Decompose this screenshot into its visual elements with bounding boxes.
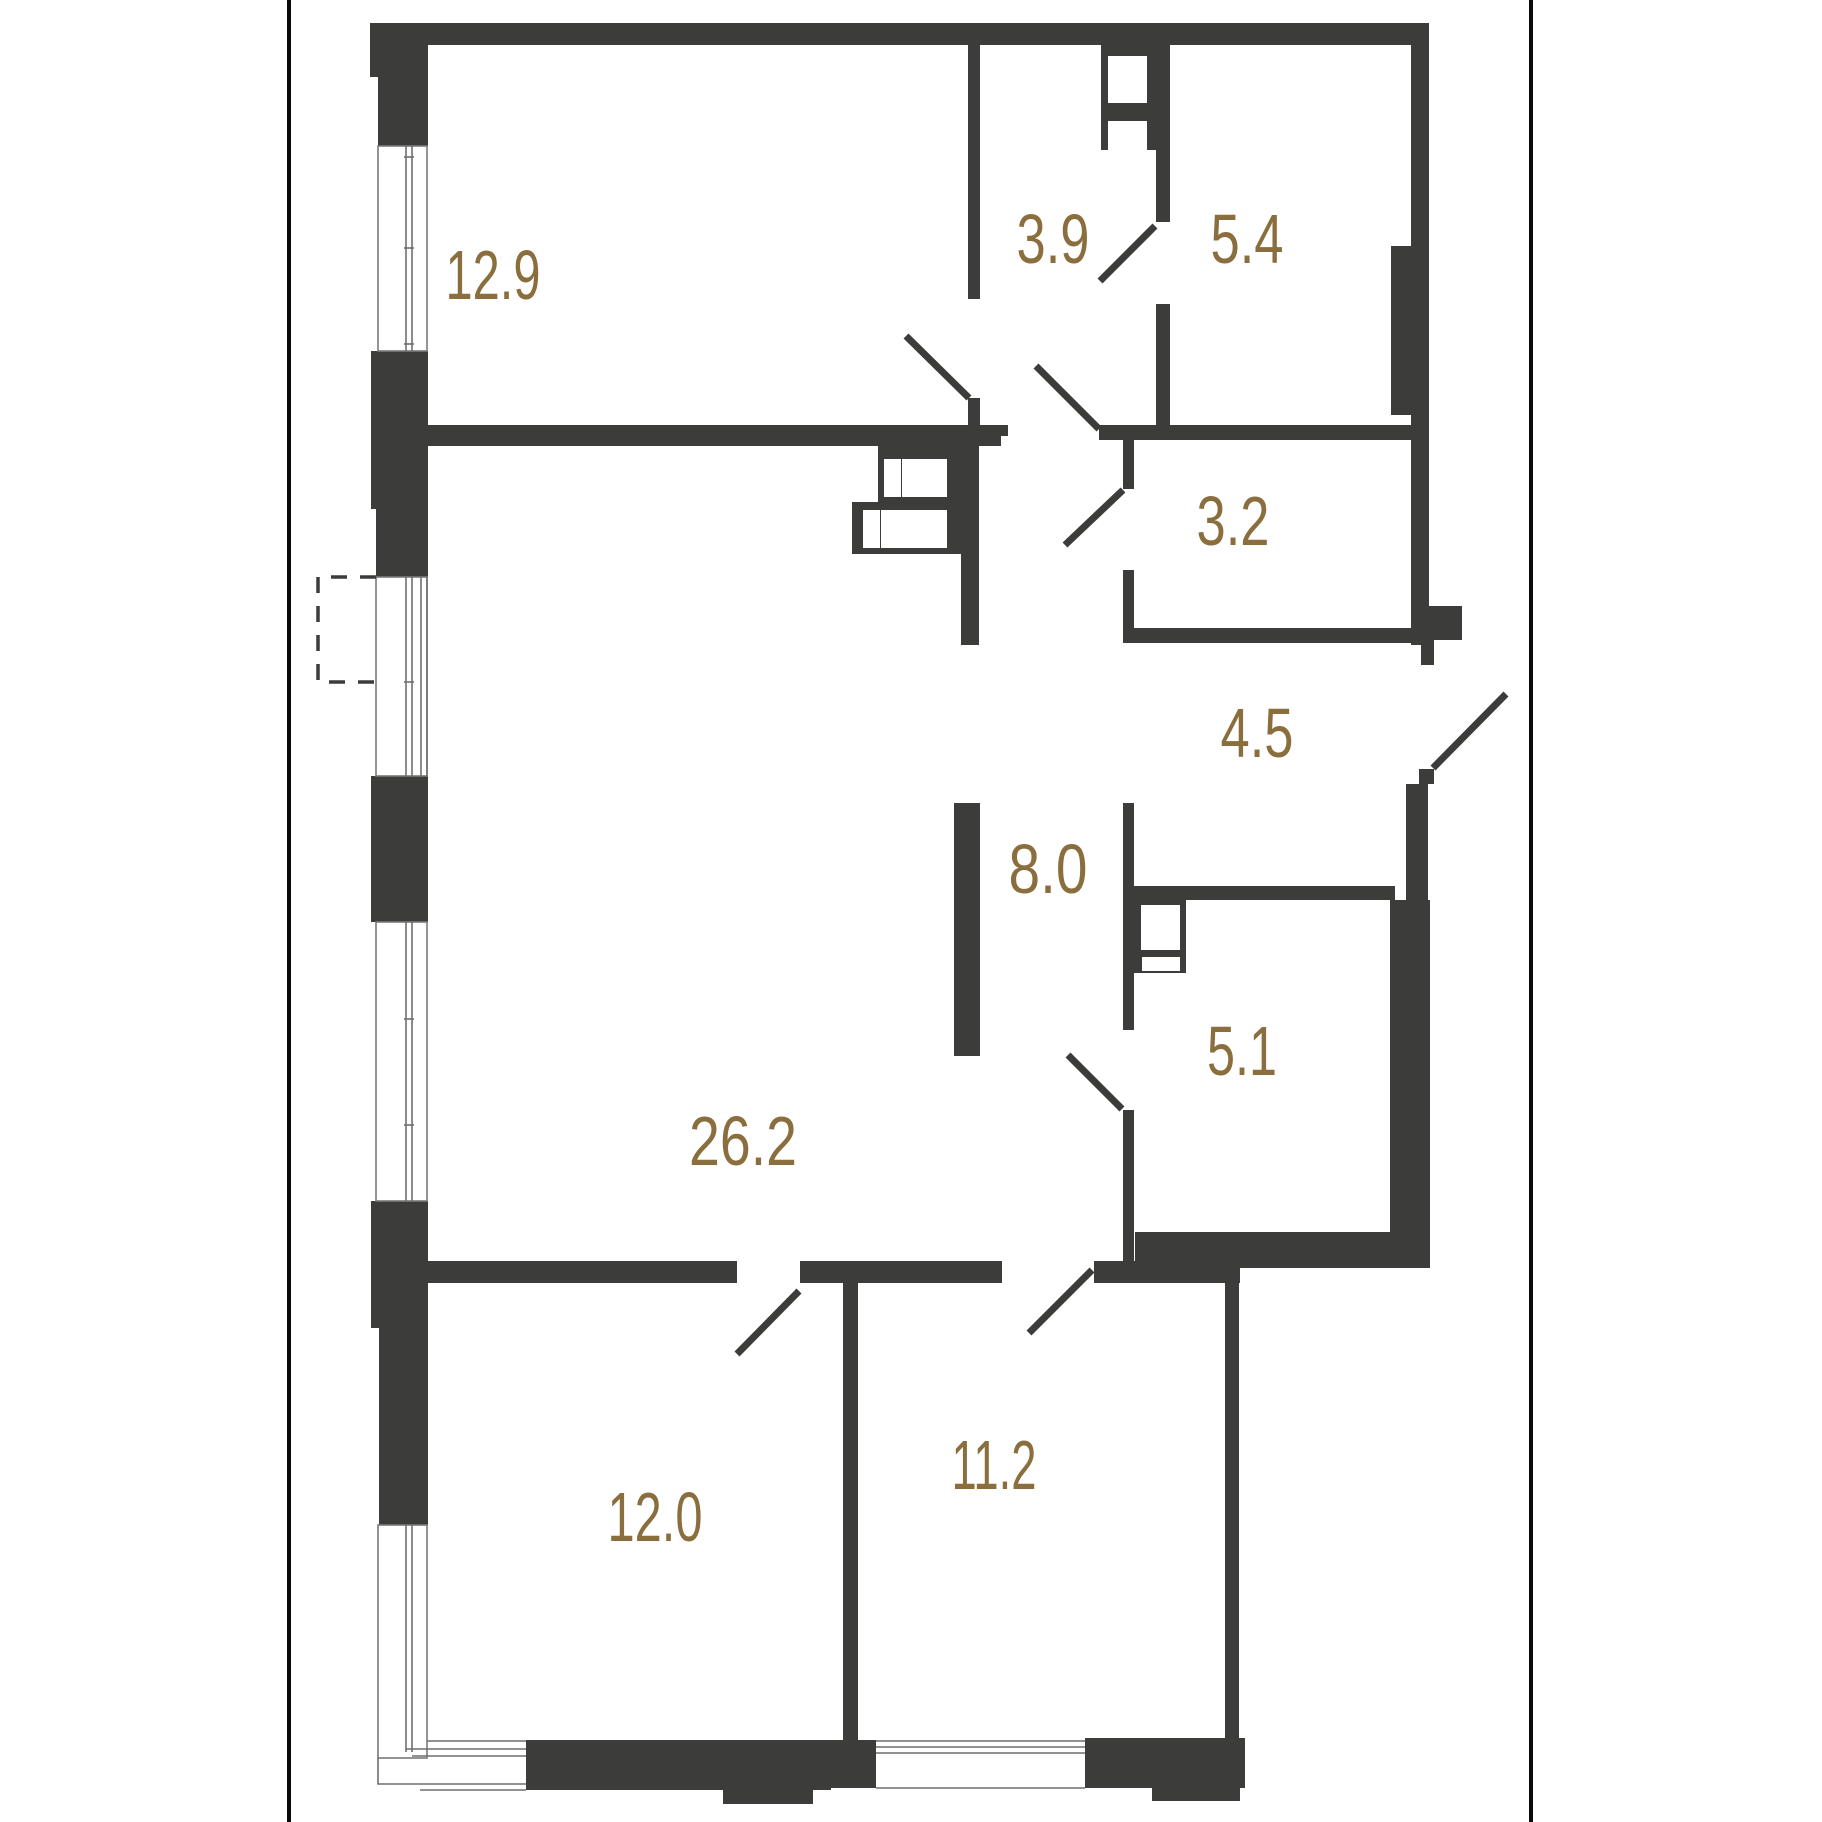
svg-text:5.4: 5.4 [1211,200,1284,278]
svg-text:8.0: 8.0 [1009,830,1088,908]
svg-text:4.5: 4.5 [1221,694,1294,772]
svg-text:3.9: 3.9 [1017,200,1090,278]
svg-text:12.9: 12.9 [446,236,541,314]
svg-text:11.2: 11.2 [952,1426,1037,1504]
svg-text:3.2: 3.2 [1197,482,1270,560]
svg-text:12.0: 12.0 [608,1478,703,1556]
svg-text:26.2: 26.2 [689,1102,797,1180]
svg-text:5.1: 5.1 [1207,1012,1277,1090]
